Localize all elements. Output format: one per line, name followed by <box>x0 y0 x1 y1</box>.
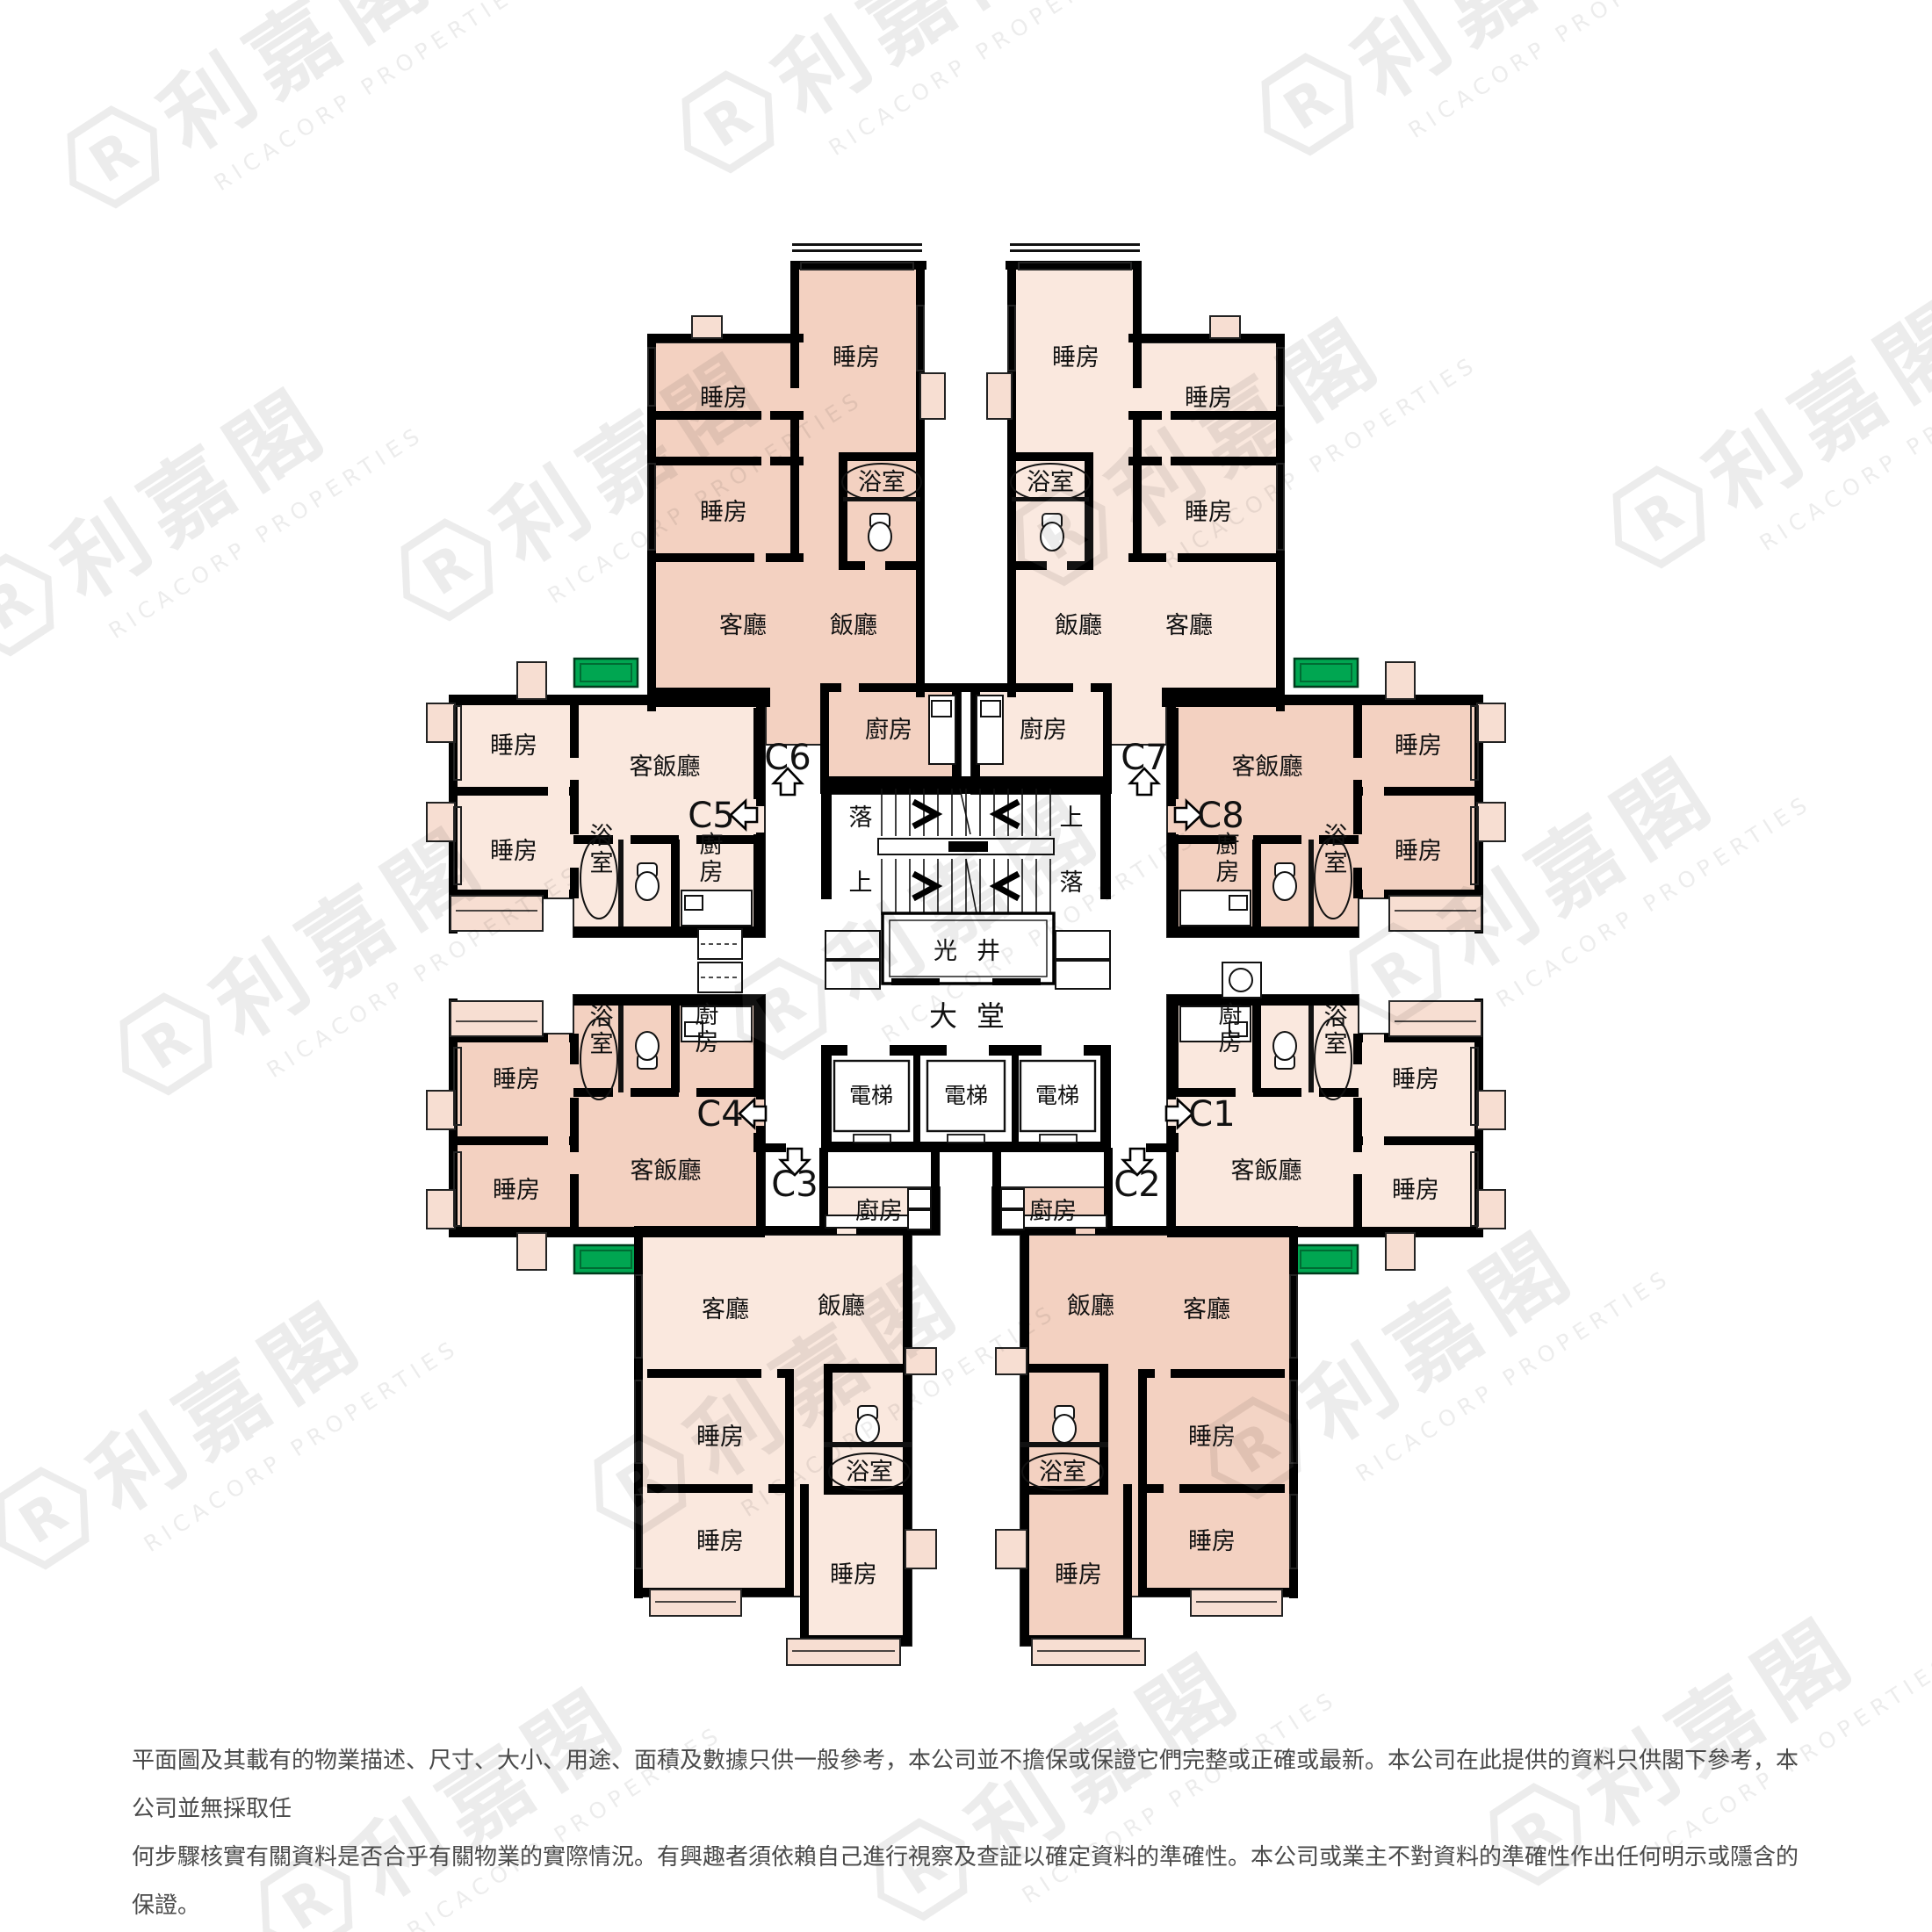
room-label-kitchen: 廚房 <box>691 1002 719 1056</box>
room-label-bedroom: 睡房 <box>493 1177 540 1204</box>
unit-label-c7: C7 <box>1121 738 1167 778</box>
room-label-bathroom: 浴室 <box>1320 823 1347 877</box>
balcony-top-left <box>574 659 638 687</box>
room-label-bedroom: 睡房 <box>1185 385 1232 412</box>
room-label-kitchen: 廚房 <box>1029 1198 1077 1225</box>
disclaimer-block: 平面圖及其載有的物業描述、尺寸、大小、用途、面積及數據只供一般參考，本公司並不擔… <box>132 1737 1809 1932</box>
room-label-kitchen: 廚房 <box>865 717 912 744</box>
room-label-living: 客廳 <box>702 1296 749 1323</box>
unit-label-c1: C1 <box>1188 1094 1235 1135</box>
room-label-bedroom: 睡房 <box>833 344 880 371</box>
room-label-bedroom: 睡房 <box>1185 499 1232 526</box>
room-label-dining: 飯廳 <box>1055 612 1102 639</box>
unit-label-c5: C5 <box>688 796 734 836</box>
room-label-bedroom: 睡房 <box>1392 1177 1439 1204</box>
stairs-down-label: 落 <box>1060 869 1084 897</box>
room-label-living-dining: 客飯廳 <box>1232 753 1303 781</box>
stairs-up-label: 上 <box>1060 804 1084 832</box>
disclaimer-zh-line1: 平面圖及其載有的物業描述、尺寸、大小、用途、面積及數據只供一般參考，本公司並不擔… <box>132 1737 1809 1834</box>
room-label-kitchen: 廚房 <box>696 832 724 886</box>
room-label-bedroom: 睡房 <box>1395 838 1442 865</box>
disclaimer-zh-line2: 何步驟核實有關資料是否合乎有關物業的實際情況。有興趣者須依賴自己進行視察及查証以… <box>132 1834 1809 1930</box>
room-label-living: 客廳 <box>1165 612 1213 639</box>
room-label-bedroom: 睡房 <box>1055 1561 1102 1589</box>
room-label-dining: 飯廳 <box>818 1293 865 1320</box>
room-label-bedroom: 睡房 <box>700 499 747 526</box>
floor-plan-svg: C6 C7 C5 C8 C4 C1 C3 C2 睡房 睡房 睡房 浴室 客廳 飯… <box>0 0 1932 1932</box>
balcony-top-right <box>1294 659 1358 687</box>
room-label-bedroom: 睡房 <box>490 838 537 865</box>
room-label-bedroom: 睡房 <box>1052 344 1099 371</box>
light-well-label: 光井 <box>934 938 1020 965</box>
unit-label-c4: C4 <box>696 1094 743 1135</box>
room-label-bedroom: 睡房 <box>1392 1066 1439 1093</box>
floor-plan-page: C6 C7 C5 C8 C4 C1 C3 C2 睡房 睡房 睡房 浴室 客廳 飯… <box>0 0 1932 1932</box>
room-label-bedroom: 睡房 <box>1395 732 1442 760</box>
room-label-bathroom: 浴室 <box>586 1004 613 1058</box>
balcony-bottom-right <box>1294 1245 1358 1273</box>
room-label-bedroom: 睡房 <box>830 1561 877 1589</box>
room-label-bedroom: 睡房 <box>1188 1528 1236 1555</box>
room-label-living: 客廳 <box>719 612 767 639</box>
room-label-bedroom: 睡房 <box>493 1066 540 1093</box>
unit-label-c8: C8 <box>1197 796 1244 836</box>
room-label-kitchen: 廚房 <box>1212 832 1240 886</box>
room-label-living-dining: 客飯廳 <box>630 753 701 781</box>
room-label-dining: 飯廳 <box>830 612 877 639</box>
room-label-bedroom: 睡房 <box>490 732 537 760</box>
room-label-kitchen: 廚房 <box>1020 717 1067 744</box>
room-label-kitchen: 廚房 <box>855 1198 903 1225</box>
room-label-bedroom: 睡房 <box>1188 1424 1236 1451</box>
room-label-bathroom: 浴室 <box>1027 469 1074 496</box>
lift-label: 電梯 <box>1035 1083 1079 1108</box>
unit-label-c2: C2 <box>1114 1164 1160 1205</box>
room-label-bathroom: 浴室 <box>1320 1004 1347 1058</box>
room-label-dining: 飯廳 <box>1067 1293 1114 1320</box>
room-label-bathroom: 浴室 <box>858 469 905 496</box>
unit-label-c6: C6 <box>764 738 811 778</box>
room-label-kitchen: 廚房 <box>1215 1002 1243 1056</box>
room-label-bedroom: 睡房 <box>696 1528 744 1555</box>
room-label-living: 客廳 <box>1183 1296 1230 1323</box>
stairs-up-label: 上 <box>849 869 873 897</box>
room-label-bedroom: 睡房 <box>696 1424 744 1451</box>
room-label-living-dining: 客飯廳 <box>631 1157 702 1185</box>
stairs-down-label: 落 <box>849 804 873 832</box>
room-label-bathroom: 浴室 <box>586 823 613 877</box>
balcony-bottom-left <box>574 1245 638 1273</box>
room-label-bedroom: 睡房 <box>700 385 747 412</box>
room-label-living-dining: 客飯廳 <box>1231 1157 1302 1185</box>
lift-label: 電梯 <box>944 1083 988 1108</box>
room-label-bathroom: 浴室 <box>846 1459 893 1486</box>
room-label-bathroom: 浴室 <box>1039 1459 1086 1486</box>
unit-label-c3: C3 <box>771 1164 818 1205</box>
lobby-label: 大堂 <box>929 999 1024 1033</box>
lift-label: 電梯 <box>849 1083 893 1108</box>
